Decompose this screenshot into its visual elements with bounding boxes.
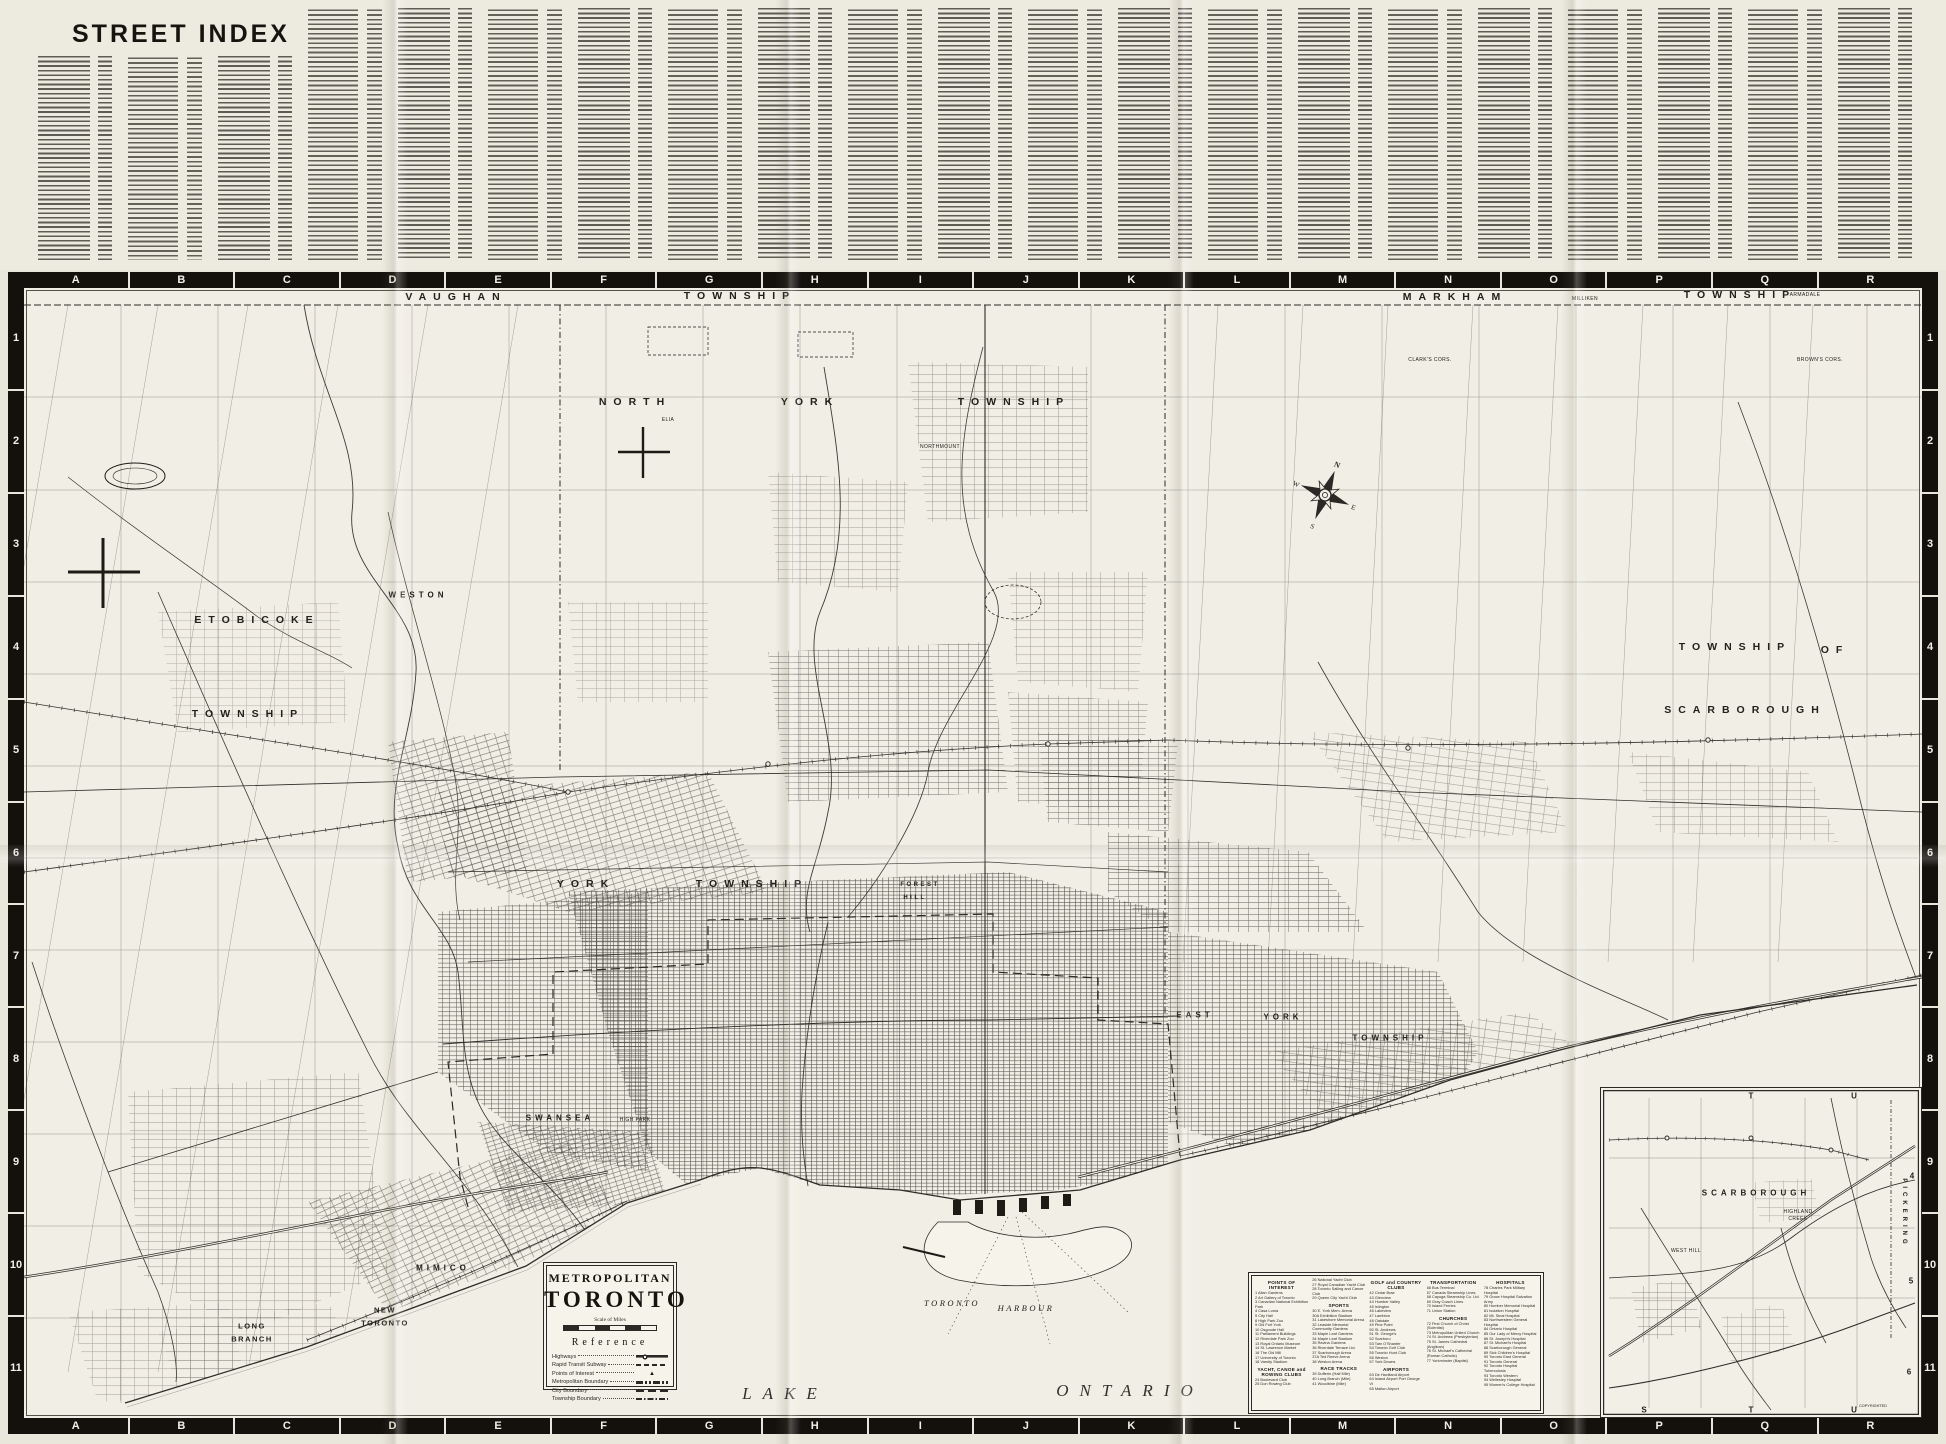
inset-label: SCARBOROUGH (1702, 1189, 1810, 1198)
legend-column: POINTS OF INTEREST1 Allan Gardens2 Art G… (1255, 1278, 1308, 1408)
grid-letter: G (655, 272, 761, 288)
legend-item: 41 Woodbine (Mile) (1312, 1382, 1365, 1387)
reference-leader (578, 1355, 634, 1356)
grid-letter: J (972, 1418, 1078, 1434)
inset-label: U (1851, 1406, 1857, 1415)
title-cartouche: METROPOLITAN TORONTO Scale of Miles Refe… (543, 1262, 677, 1390)
legend-column: TRANSPORTATION66 Bus Terminal67 Canada S… (1427, 1278, 1480, 1408)
svg-text:S: S (1309, 522, 1316, 531)
grid-letter: M (1289, 1418, 1395, 1434)
street-index-column (38, 56, 112, 260)
reference-row: Highways (552, 1353, 668, 1362)
map-title-line1: METROPOLITAN (544, 1271, 676, 1286)
legend-column: HOSPITALS78 Charles Park Military Hospit… (1484, 1278, 1537, 1408)
street-index-column (1298, 8, 1372, 260)
grid-number: 9 (1922, 1109, 1938, 1212)
reference-row: City Boundary (552, 1387, 668, 1396)
grid-letter: C (233, 1418, 339, 1434)
legend-section-header: YACHT, CANOE and ROWING CLUBS (1255, 1367, 1308, 1377)
street-index-column (1658, 8, 1732, 260)
scale-title: Scale of Miles (544, 1317, 676, 1323)
scarborough-inset: TUSTU456SCARBOROUGHHIGHLANDCREEKWEST HIL… (1600, 1087, 1922, 1418)
grid-number: 11 (8, 1315, 24, 1418)
street-index-column (1388, 8, 1462, 260)
poi-legend: POINTS OF INTEREST1 Allan Gardens2 Art G… (1248, 1272, 1544, 1414)
grid-number: 1 (1922, 288, 1938, 389)
street-index-column (1838, 8, 1912, 260)
fold-crease (775, 0, 801, 1444)
compass-rose: N E S W (1279, 448, 1370, 543)
legend-section-header: POINTS OF INTEREST (1255, 1280, 1308, 1290)
reference-rows: HighwaysRapid Transit SubwayPoints of In… (552, 1353, 668, 1404)
city-symbol-icon (636, 1388, 668, 1394)
grid-number: 8 (1922, 1006, 1938, 1109)
grid-number: 10 (8, 1212, 24, 1315)
reference-leader (603, 1398, 634, 1399)
reference-row: Township Boundary (552, 1395, 668, 1404)
grid-number: 3 (8, 492, 24, 595)
reference-leader (589, 1389, 634, 1390)
inset-label: COPYRIGHTED (1859, 1404, 1887, 1408)
inset-label: 5 (1909, 1277, 1913, 1286)
grid-letter: B (128, 272, 234, 288)
street-index-column (308, 8, 382, 260)
street-index-column (578, 8, 652, 260)
reference-row: Metropolitan Boundary (552, 1378, 668, 1387)
legend-item: 29 Queen City Yacht Club (1312, 1296, 1365, 1301)
grid-letter: O (1500, 272, 1606, 288)
street-index-column (938, 8, 1012, 260)
legend-section-header: CHURCHES (1427, 1316, 1480, 1321)
grid-number: 4 (1922, 595, 1938, 698)
metro-symbol-icon (636, 1379, 668, 1385)
reference-label: Rapid Transit Subway (552, 1362, 606, 1368)
reference-label: Township Boundary (552, 1396, 601, 1402)
grid-number: 5 (8, 698, 24, 801)
fold-crease (1168, 0, 1194, 1444)
reference-label: Metropolitan Boundary (552, 1379, 608, 1385)
legend-section-header: AIRPORTS (1369, 1367, 1422, 1372)
legend-item: 65 Malton Airport (1369, 1387, 1422, 1392)
fold-crease (1561, 0, 1587, 1444)
subway-symbol-icon (636, 1362, 668, 1368)
reference-row: Rapid Transit Subway (552, 1361, 668, 1370)
grid-letter: C (233, 272, 339, 288)
grid-bar-top: ABCDEFGHIJKLMNOPQR (8, 272, 1938, 288)
grid-number: 4 (8, 595, 24, 698)
legend-item: 95 Women's College Hospital (1484, 1383, 1537, 1388)
grid-number: 3 (1922, 492, 1938, 595)
inset-label: PICKERING (1901, 1178, 1907, 1247)
reference-leader (608, 1364, 634, 1365)
inset-label: S (1641, 1406, 1646, 1415)
grid-number: 11 (1922, 1315, 1938, 1418)
street-index: STREET INDEX (0, 0, 1946, 270)
grid-letter: M (1289, 272, 1395, 288)
grid-number: 10 (1922, 1212, 1938, 1315)
grid-number: 1 (8, 288, 24, 389)
grid-letter: I (867, 1418, 973, 1434)
reference-label: Points of Interest (552, 1371, 594, 1377)
grid-letter: J (972, 272, 1078, 288)
grid-letter: P (1605, 272, 1711, 288)
grid-number: 2 (1922, 389, 1938, 492)
grid-letter: O (1500, 1418, 1606, 1434)
grid-number: 7 (1922, 903, 1938, 1006)
svg-text:E: E (1350, 503, 1357, 512)
street-index-column (398, 8, 472, 260)
grid-letter: I (867, 272, 973, 288)
street-index-column (848, 8, 922, 260)
grid-letter: N (1394, 272, 1500, 288)
grid-letter: F (550, 272, 656, 288)
reference-row: Points of Interest (552, 1370, 668, 1379)
inset-label: T (1749, 1406, 1754, 1415)
inset-label: HIGHLAND (1783, 1209, 1812, 1215)
inset-label: T (1749, 1092, 1754, 1101)
grid-letter: L (1183, 1418, 1289, 1434)
reference-label: City Boundary (552, 1388, 587, 1394)
legend-section-header: GOLF and COUNTRY CLUBS (1369, 1280, 1422, 1290)
street-index-column (128, 56, 202, 260)
inset-linework (1601, 1088, 1923, 1419)
legend-item: 25 Don Rowing Club (1255, 1382, 1308, 1387)
fold-crease (0, 845, 1946, 867)
reference-leader (610, 1381, 634, 1382)
grid-number: 8 (8, 1006, 24, 1109)
inset-label: U (1851, 1092, 1857, 1101)
legend-item: 71 Union Station (1427, 1309, 1480, 1314)
grid-letter: A (24, 272, 128, 288)
reference-title: Reference (544, 1337, 676, 1348)
street-index-column (488, 8, 562, 260)
grid-letter: E (444, 272, 550, 288)
grid-number: 5 (1922, 698, 1938, 801)
street-index-column (1028, 8, 1102, 260)
street-index-column (668, 8, 742, 260)
grid-letter: R (1817, 272, 1923, 288)
street-index-column (1748, 8, 1822, 260)
grid-letter: B (128, 1418, 234, 1434)
legend-column: GOLF and COUNTRY CLUBS42 Cedar Brae43 Gl… (1369, 1278, 1422, 1408)
grid-number: 7 (8, 903, 24, 1006)
toronto-map-scan: STREET INDEX ABCDEFGHIJKLMNOPQR ABCDEFGH… (0, 0, 1946, 1444)
svg-text:N: N (1333, 460, 1342, 471)
reference-leader (596, 1372, 634, 1373)
grid-number: 2 (8, 389, 24, 492)
grid-letter: A (24, 1418, 128, 1434)
street-index-column (1208, 8, 1282, 260)
scale-bar (563, 1325, 657, 1331)
reference-label: Highways (552, 1354, 576, 1360)
highway-symbol-icon (636, 1354, 668, 1360)
grid-letter: G (655, 1418, 761, 1434)
street-index-column (218, 56, 292, 260)
township-symbol-icon (636, 1396, 668, 1402)
poi-symbol-icon (636, 1371, 668, 1377)
svg-text:W: W (1291, 479, 1300, 489)
legend-column: 26 National Yacht Club27 Royal Canadian … (1312, 1278, 1365, 1408)
grid-letter: N (1394, 1418, 1500, 1434)
legend-item: 77 Yorkminster (Baptist) (1427, 1359, 1480, 1364)
legend-item: 38 Weston Arena (1312, 1360, 1365, 1365)
legend-item: 57 York Downs (1369, 1360, 1422, 1365)
grid-letter: E (444, 1418, 550, 1434)
legend-item: 18 Varsity Stadium (1255, 1360, 1308, 1365)
inset-label: CREEK (1788, 1216, 1807, 1222)
fold-crease (382, 0, 408, 1444)
inset-label: WEST HILL (1671, 1248, 1701, 1254)
inset-label: 6 (1907, 1368, 1911, 1377)
map-title-line2: TORONTO (544, 1287, 676, 1313)
grid-letter: F (550, 1418, 656, 1434)
grid-letter: Q (1711, 272, 1817, 288)
street-index-column (1478, 8, 1552, 260)
street-index-title: STREET INDEX (72, 20, 290, 49)
grid-letter: L (1183, 272, 1289, 288)
grid-number: 9 (8, 1109, 24, 1212)
inset-label: 4 (1910, 1172, 1914, 1181)
